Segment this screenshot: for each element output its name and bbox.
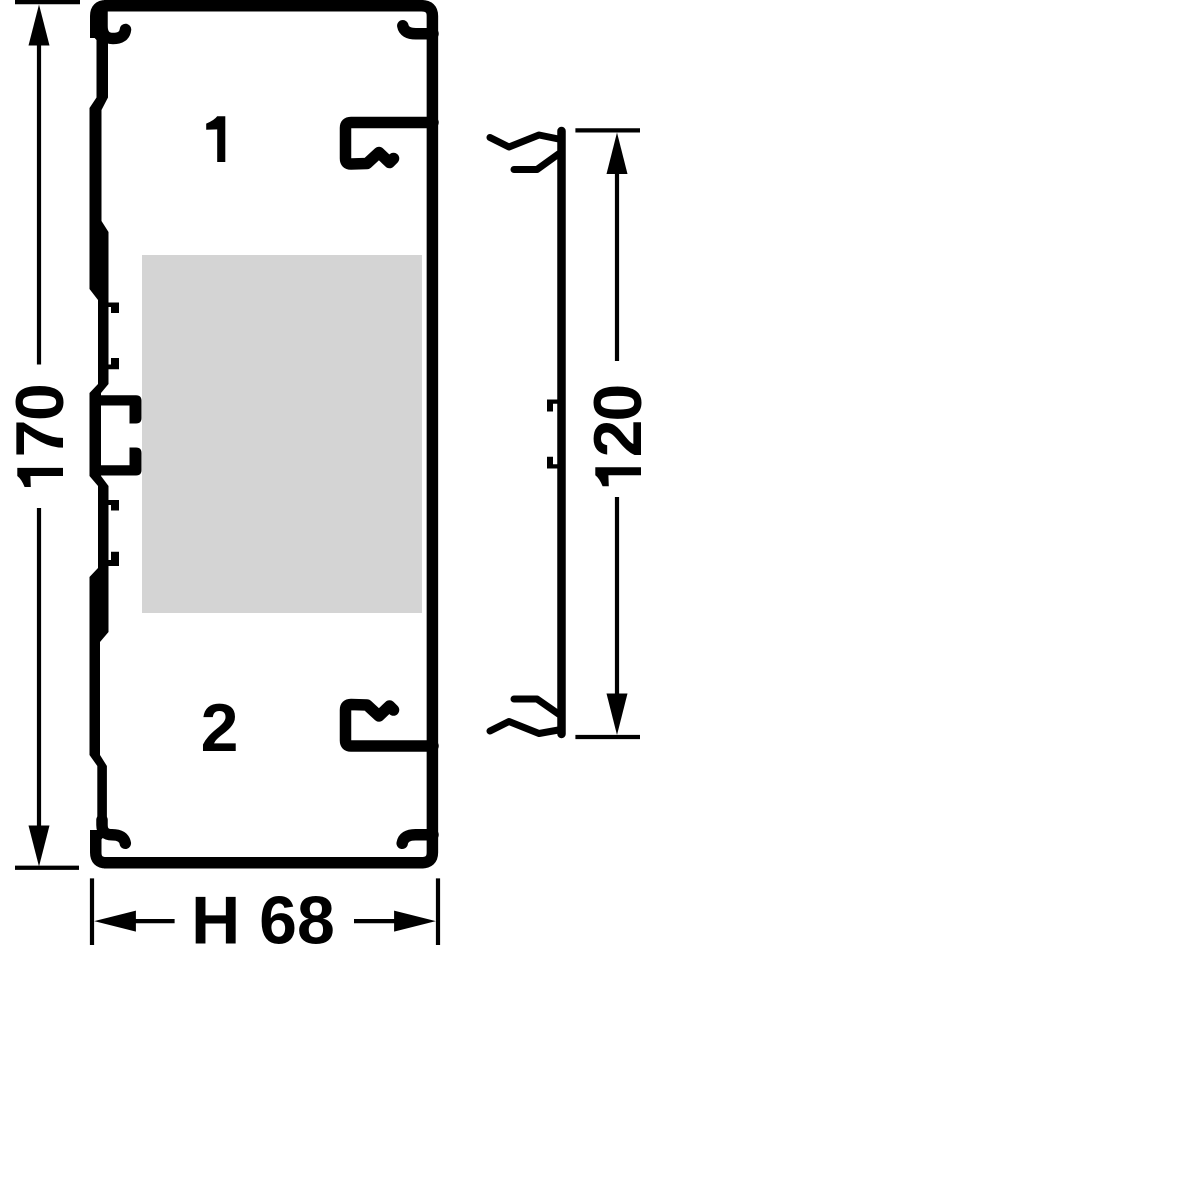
svg-text:0: 0: [580, 384, 656, 422]
svg-text:7: 7: [2, 420, 78, 458]
svg-text:2: 2: [201, 690, 239, 766]
svg-text:0: 0: [2, 383, 78, 421]
svg-text:H 68: H 68: [191, 883, 335, 959]
svg-text:2: 2: [580, 420, 656, 458]
